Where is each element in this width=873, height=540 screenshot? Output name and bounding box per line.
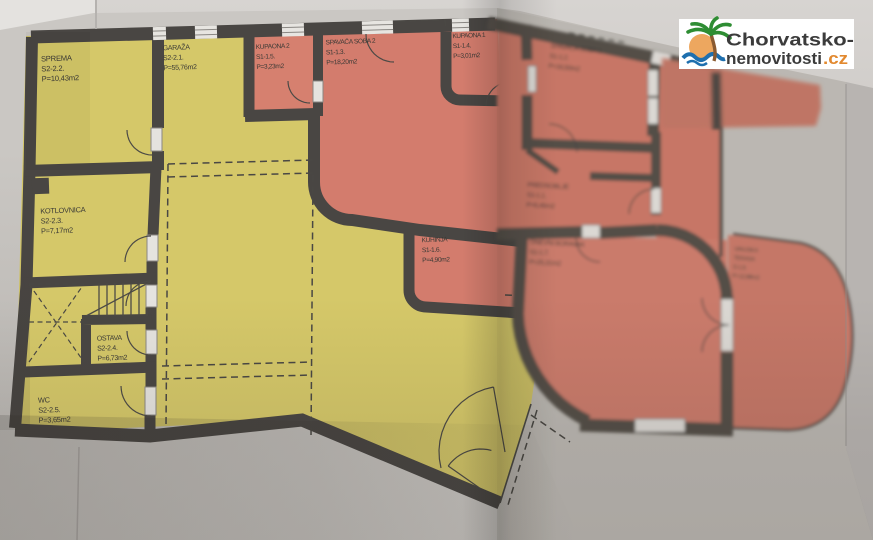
- svg-text:.cz: .cz: [823, 49, 848, 68]
- svg-text:Chorvatsko-: Chorvatsko-: [726, 30, 854, 50]
- svg-text:nemovitosti: nemovitosti: [726, 49, 822, 68]
